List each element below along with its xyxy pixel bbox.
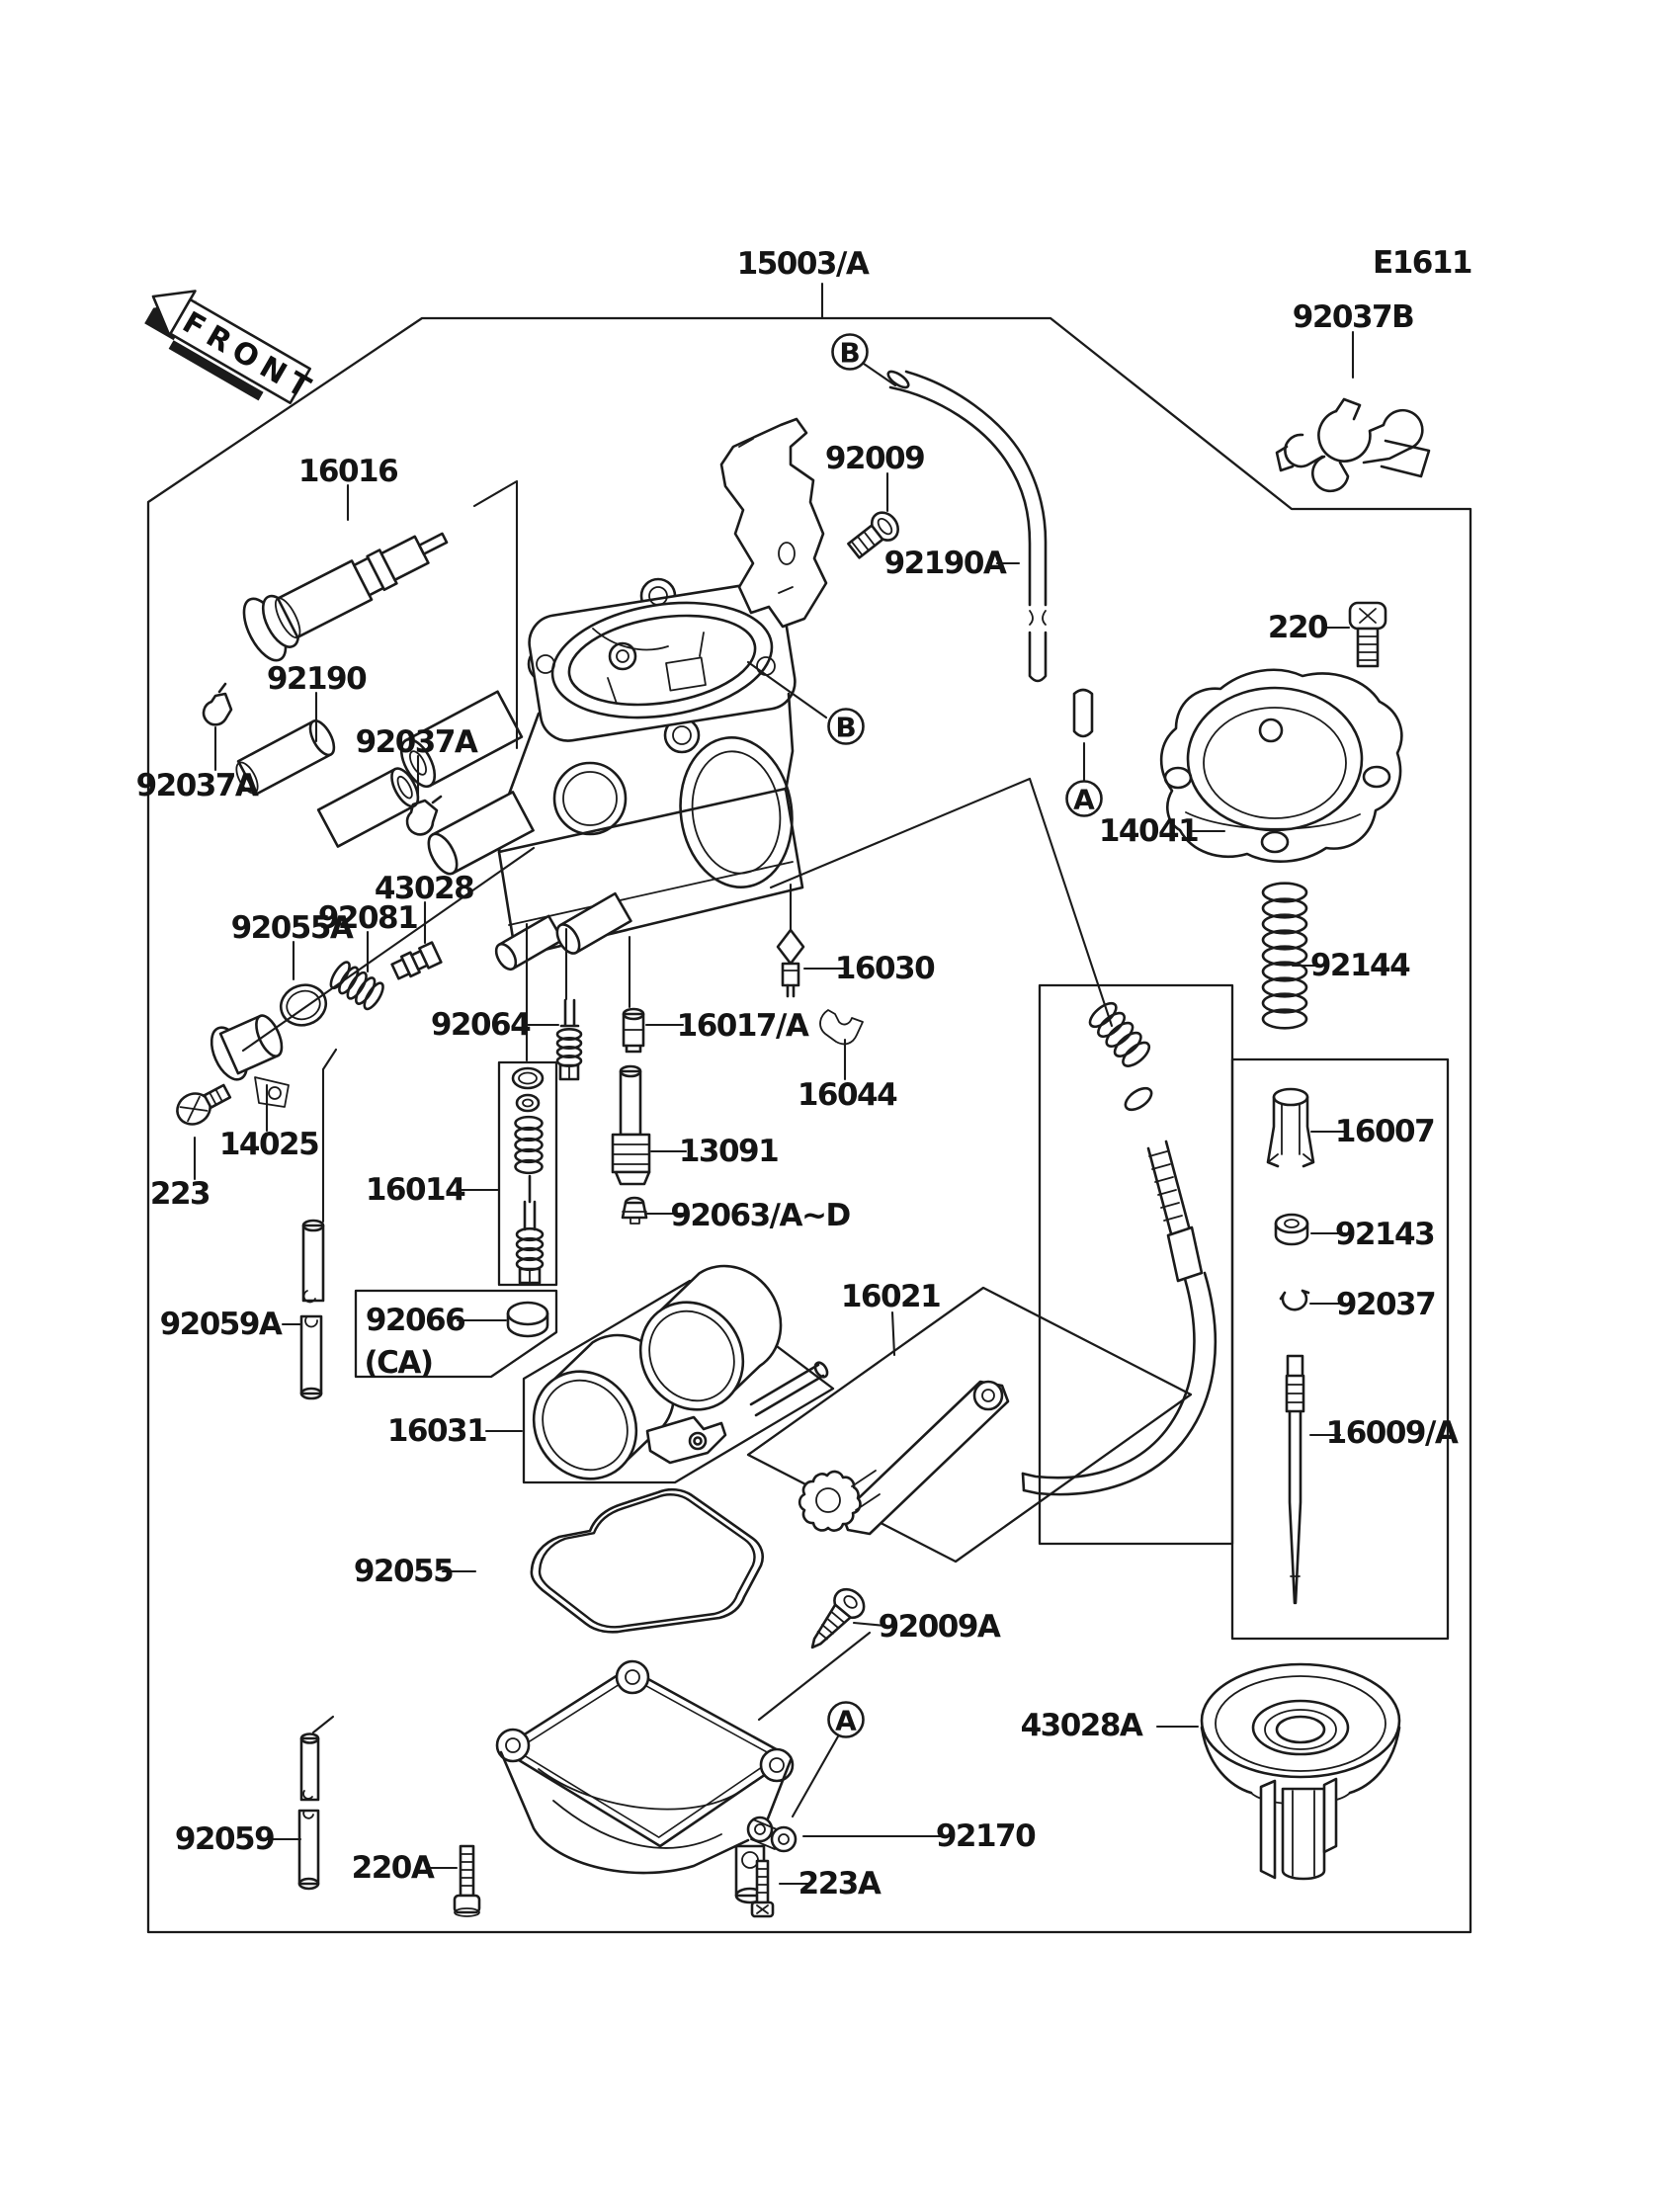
jet-needle-16009a [1287, 1356, 1303, 1603]
part-label-16031: 16031 [387, 1413, 486, 1449]
callout-b: B [829, 710, 864, 744]
part-label-92063-a-d: 92063/A~D [670, 1198, 850, 1233]
circlip-92037 [1281, 1291, 1308, 1310]
screw-220 [1350, 603, 1386, 666]
part-label-16017-a: 16017/A [677, 1008, 809, 1044]
part-label-92143: 92143 [1335, 1217, 1434, 1252]
leader-line [771, 779, 1112, 1026]
part-label-92009-a: 92009A [879, 1609, 1001, 1645]
screw-43028 [390, 943, 441, 981]
spring-coil [1086, 999, 1153, 1070]
part-label-16016: 16016 [298, 454, 397, 489]
callout-letter: A [835, 1705, 857, 1737]
tubes-92059a [301, 1221, 323, 1398]
jet-92063 [623, 1198, 646, 1224]
throttle-cable-16021 [1023, 1084, 1216, 1494]
part-label-92144: 92144 [1310, 948, 1410, 983]
part-label-diagram-code: E1611 [1373, 245, 1471, 281]
cap-92066 [508, 1303, 547, 1336]
clip-92037b [1277, 399, 1429, 491]
main-jet-holder-13091 [613, 1066, 649, 1184]
tube-92190-lower [318, 764, 423, 846]
part-label-92190-a: 92190A [884, 546, 1007, 581]
part-label-92037-b: 92037B [1293, 299, 1413, 335]
callout-letter: B [835, 712, 856, 744]
part-label-220-a: 220A [352, 1850, 435, 1886]
washer-92143 [1276, 1215, 1307, 1244]
part-label-223-a: 223A [798, 1866, 882, 1901]
part-label-16030: 16030 [835, 951, 935, 986]
tubes-92059 [299, 1734, 318, 1890]
part-label-92037: 92037 [1336, 1287, 1435, 1322]
part-label-92037-a-right: 92037A [356, 724, 478, 760]
callout-letter: A [1073, 784, 1095, 816]
float-bowl [497, 1661, 793, 1902]
leader-line [793, 1736, 838, 1817]
screw-223 [172, 1078, 234, 1130]
box-16021 [1040, 985, 1232, 1544]
part-label-14025: 14025 [219, 1127, 318, 1162]
part-label-15003-a: 15003/A [737, 246, 870, 282]
part-label-92066: 92066 [366, 1303, 464, 1338]
callout-a: A [1067, 782, 1102, 816]
part-label-92009: 92009 [825, 441, 924, 476]
needle-valve-16030 [778, 930, 803, 996]
spring-coil [517, 1228, 543, 1270]
part-label-92037-a-left: 92037A [136, 768, 259, 803]
front-arrow: FRONT [134, 274, 328, 422]
part-label-223: 223 [150, 1176, 210, 1212]
carburetor-body-drawing [394, 579, 802, 972]
screw-220a [455, 1846, 479, 1916]
part-label-92190: 92190 [267, 661, 367, 697]
part-label-14041: 14041 [1099, 813, 1198, 849]
clip-16044 [820, 1010, 863, 1044]
leader-line [313, 1717, 333, 1732]
screw-92009a [800, 1583, 870, 1657]
part-label-13091: 13091 [679, 1134, 778, 1169]
part-label-43028-a: 43028A [1021, 1708, 1143, 1743]
part-label-16021: 16021 [841, 1279, 940, 1314]
part-label-92055: 92055 [354, 1554, 453, 1589]
spring-coil [1263, 884, 1306, 1029]
part-label-92055-a: 92055A [231, 910, 354, 946]
choke-plunger-16016 [235, 508, 460, 666]
spring-coil [557, 1029, 581, 1065]
jet-16017a [624, 1009, 643, 1052]
part-label-92059: 92059 [175, 1821, 274, 1857]
clip-92037a-left [204, 684, 231, 724]
diaphragm-43028a [1202, 1664, 1399, 1879]
callout-a: A [829, 1703, 864, 1737]
leader-line [323, 1050, 336, 1222]
needle-jet-holder-16007 [1268, 1089, 1313, 1166]
part-label-16044: 16044 [798, 1077, 897, 1113]
exploded-parts-diagram: FRONT [0, 0, 1680, 2197]
part-label-92064: 92064 [431, 1007, 531, 1043]
part-label-ca-note: (CA) [364, 1345, 432, 1381]
callout-b: B [833, 335, 868, 370]
spring-coil [516, 1117, 543, 1173]
parts-diagram-page: FRONT [0, 0, 1680, 2197]
fuel-inlet-boss [423, 792, 534, 878]
part-label-92059-a: 92059A [160, 1307, 283, 1342]
part-label-16014: 16014 [366, 1172, 465, 1208]
piston-rod [751, 1361, 830, 1415]
bowl-gasket-92055 [532, 1489, 763, 1632]
part-label-16009-a: 16009/A [1326, 1415, 1459, 1451]
part-label-16007: 16007 [1335, 1114, 1434, 1149]
part-label-220: 220 [1268, 610, 1328, 645]
part-label-92170: 92170 [936, 1818, 1036, 1854]
throttle-lever-arm [799, 1382, 1008, 1534]
leader-line [892, 1312, 894, 1355]
callout-letter: B [839, 337, 860, 370]
leader-line [864, 364, 895, 385]
